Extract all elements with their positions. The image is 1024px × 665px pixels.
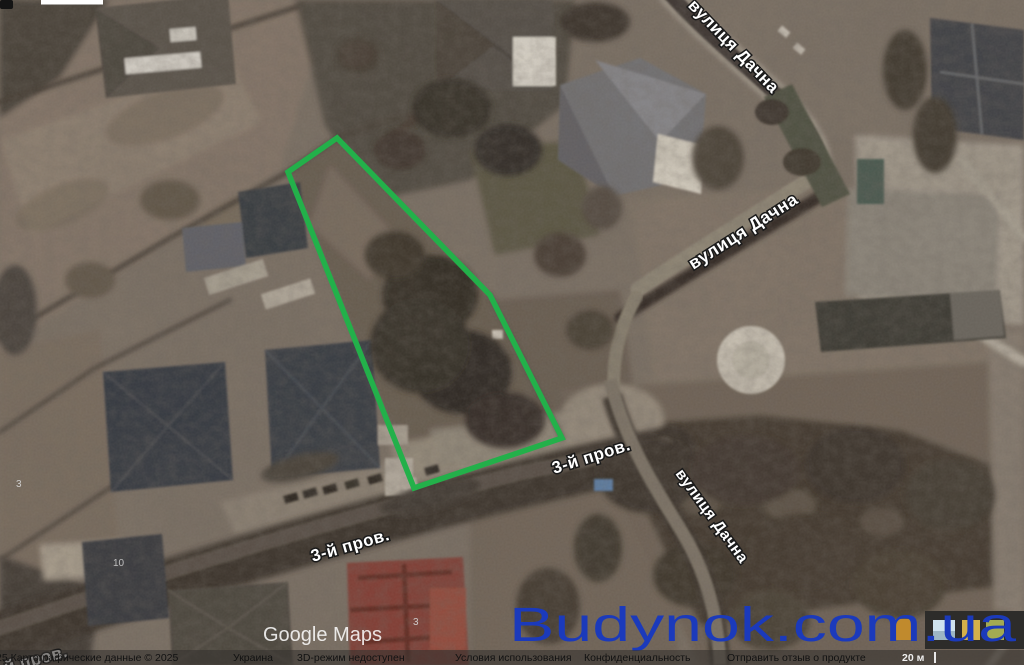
svg-text:Конфиденциальность: Конфиденциальность [584,652,691,664]
svg-text:10: 10 [113,558,125,569]
svg-text:3: 3 [413,617,419,628]
svg-text:Google Maps: Google Maps [263,624,382,646]
svg-text:Украина: Украина [233,652,273,664]
svg-text:20 м: 20 м [902,652,925,664]
svg-text:Отправить отзыв о продукте: Отправить отзыв о продукте [727,652,866,664]
svg-text:Budynok.com.ua: Budynok.com.ua [509,599,1016,652]
svg-text:3D-режим недоступен: 3D-режим недоступен [297,652,405,664]
svg-text:25 Картографические данные ©: 25 Картографические данные © 2025 [0,652,179,664]
svg-text:3: 3 [16,479,22,490]
svg-text:Условия использования: Условия использования [455,652,572,664]
